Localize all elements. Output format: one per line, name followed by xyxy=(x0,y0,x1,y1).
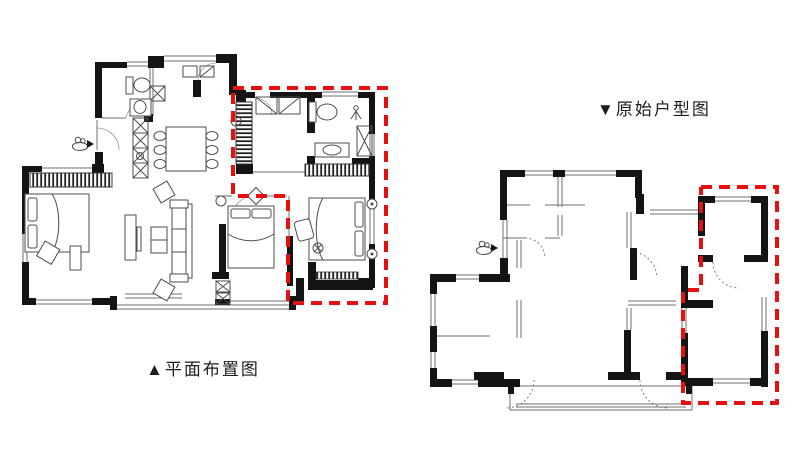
left-floor-plan xyxy=(22,54,386,310)
toilet-bath2 xyxy=(309,102,337,122)
toilet-bath1 xyxy=(126,77,150,94)
right-floor-plan xyxy=(430,170,777,410)
left-plan-caption: ▲平面布置图 xyxy=(146,355,260,380)
person-marker-left xyxy=(73,137,95,150)
right-plan-caption: ▼原始户型图 xyxy=(597,95,711,120)
bed-right-bedroom xyxy=(309,198,377,260)
tv-cabinet xyxy=(125,215,141,260)
right-plan-walls xyxy=(430,170,768,394)
sink-bath1 xyxy=(130,99,151,116)
dining-table xyxy=(154,127,218,171)
cabinet-column xyxy=(133,118,148,178)
shower-icon xyxy=(351,106,361,120)
wardrobe-right-bedroom xyxy=(305,164,369,176)
sink-bath2 xyxy=(315,143,349,157)
wardrobe-hallway xyxy=(236,102,252,164)
wardrobe-left-bedroom xyxy=(30,173,112,187)
window-seat-right-bedroom xyxy=(316,272,358,279)
coffee-table xyxy=(151,227,167,253)
bed-left-bedroom xyxy=(25,194,89,252)
floorplan-sheet: ▲平面布置图 ▼原始户型图 xyxy=(0,0,800,449)
kitchen-cabinets xyxy=(150,66,214,101)
sofa xyxy=(170,200,192,282)
person-marker-right xyxy=(477,241,499,254)
desk-left-bedroom xyxy=(70,246,81,270)
